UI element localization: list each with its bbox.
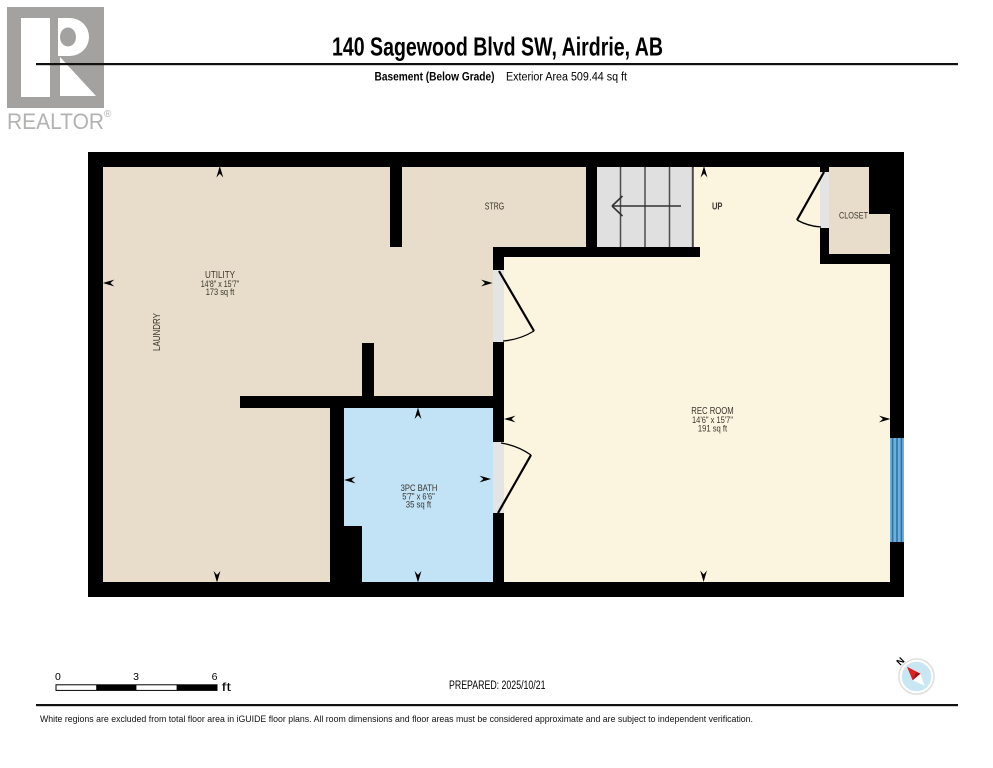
svg-text:ft: ft <box>222 680 232 694</box>
svg-text:UP: UP <box>712 202 723 213</box>
svg-text:White regions are excluded fro: White regions are excluded from total fl… <box>40 714 753 725</box>
svg-text:191 sq ft: 191 sq ft <box>698 424 728 434</box>
svg-text:35 sq ft: 35 sq ft <box>406 500 432 510</box>
svg-text:Exterior Area 509.44 sq ft: Exterior Area 509.44 sq ft <box>506 72 628 84</box>
svg-text:173 sq ft: 173 sq ft <box>206 287 235 297</box>
svg-text:REALTOR: REALTOR <box>7 109 104 134</box>
svg-text:®: ® <box>104 109 112 120</box>
svg-text:PREPARED: 2025/10/21: PREPARED: 2025/10/21 <box>449 680 546 692</box>
svg-text:3: 3 <box>133 671 139 683</box>
svg-text:0: 0 <box>55 671 61 683</box>
svg-text:LAUNDRY: LAUNDRY <box>152 313 163 351</box>
svg-text:STRG: STRG <box>485 202 504 213</box>
svg-text:Basement (Below Grade): Basement (Below Grade) <box>375 72 495 84</box>
svg-text:CLOSET: CLOSET <box>839 210 868 220</box>
svg-text:6: 6 <box>212 671 218 683</box>
svg-text:140 Sagewood Blvd SW, Airdrie,: 140 Sagewood Blvd SW, Airdrie, AB <box>332 32 663 62</box>
